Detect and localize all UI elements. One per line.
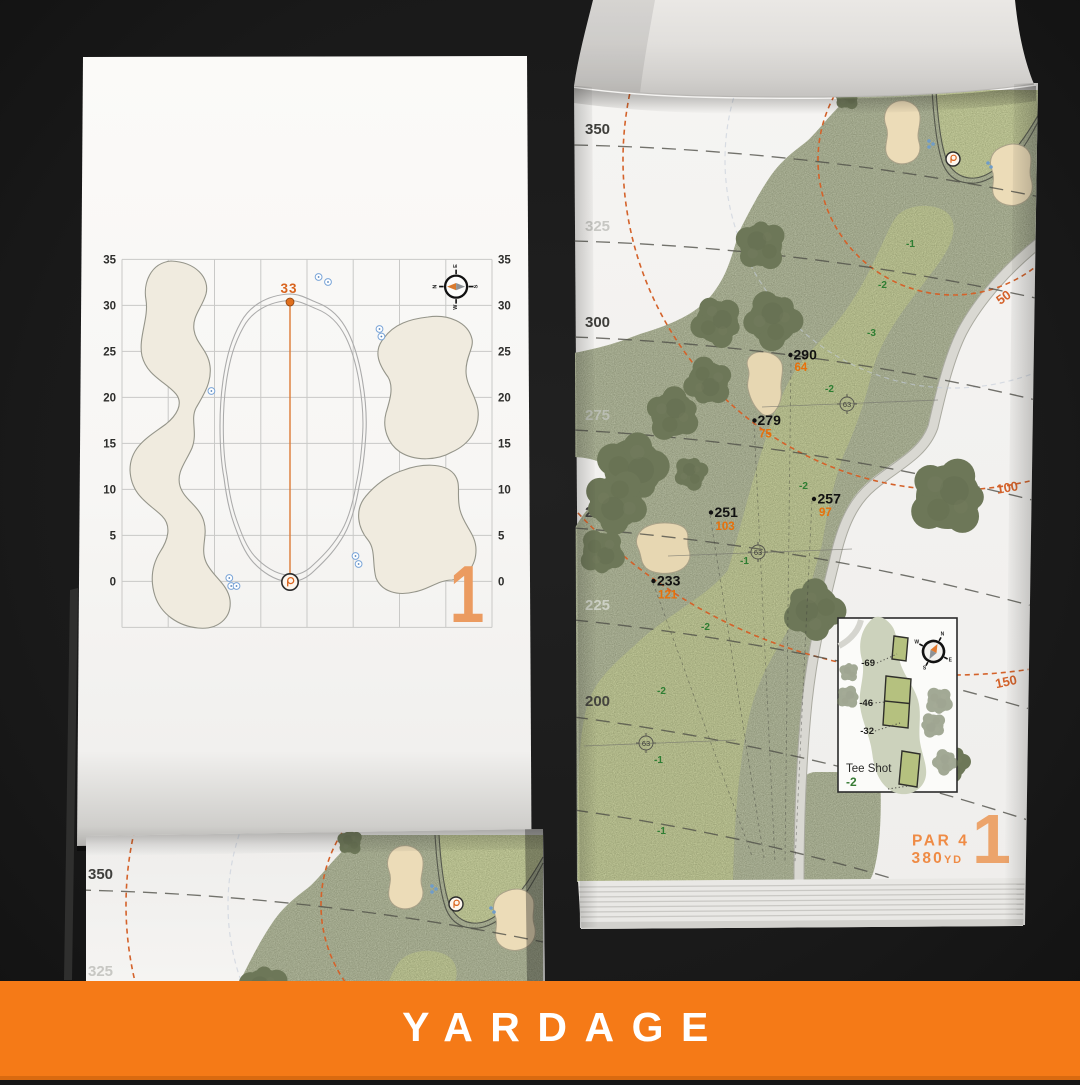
svg-text:N: N <box>433 285 439 289</box>
svg-text:15: 15 <box>103 438 116 450</box>
svg-text:20: 20 <box>498 392 511 404</box>
svg-text:25: 25 <box>498 346 511 358</box>
svg-text:10: 10 <box>498 484 511 496</box>
svg-text:1: 1 <box>450 550 485 640</box>
svg-text:W: W <box>453 304 459 310</box>
svg-text:25: 25 <box>103 346 116 358</box>
svg-text:5: 5 <box>498 530 505 542</box>
svg-text:33: 33 <box>280 281 297 296</box>
svg-text:5: 5 <box>110 530 117 542</box>
svg-text:35: 35 <box>498 254 511 266</box>
svg-text:YARDAGE: YARDAGE <box>402 1004 726 1050</box>
svg-text:30: 30 <box>498 300 511 312</box>
svg-text:0: 0 <box>498 576 504 588</box>
svg-text:S: S <box>474 284 480 288</box>
svg-text:35: 35 <box>103 254 116 266</box>
svg-text:0: 0 <box>110 576 116 588</box>
svg-text:15: 15 <box>498 438 511 450</box>
svg-text:20: 20 <box>103 392 116 404</box>
svg-text:E: E <box>453 264 459 268</box>
svg-text:30: 30 <box>103 300 116 312</box>
svg-text:10: 10 <box>103 484 116 496</box>
